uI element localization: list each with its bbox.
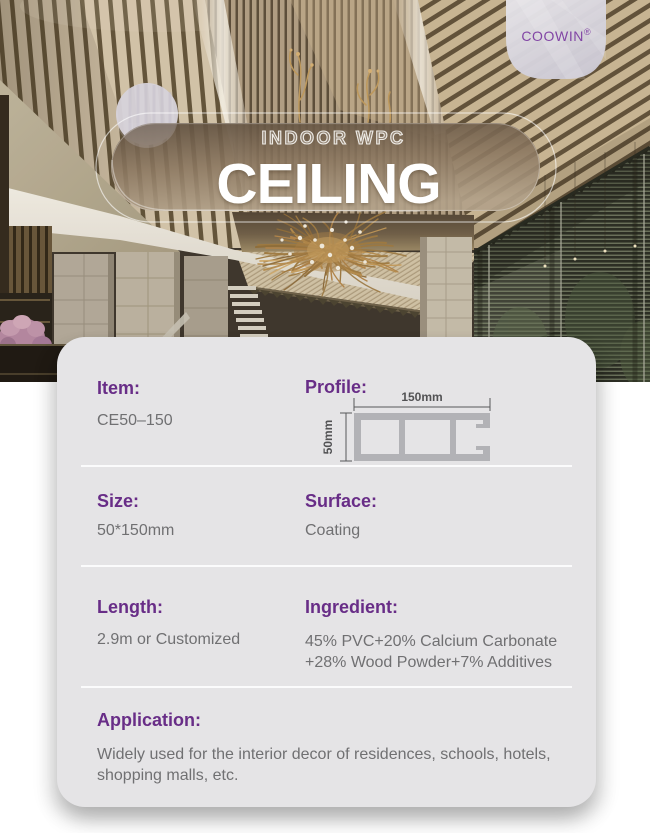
svg-text:50mm: 50mm xyxy=(321,420,335,455)
svg-text:150mm: 150mm xyxy=(401,390,442,404)
